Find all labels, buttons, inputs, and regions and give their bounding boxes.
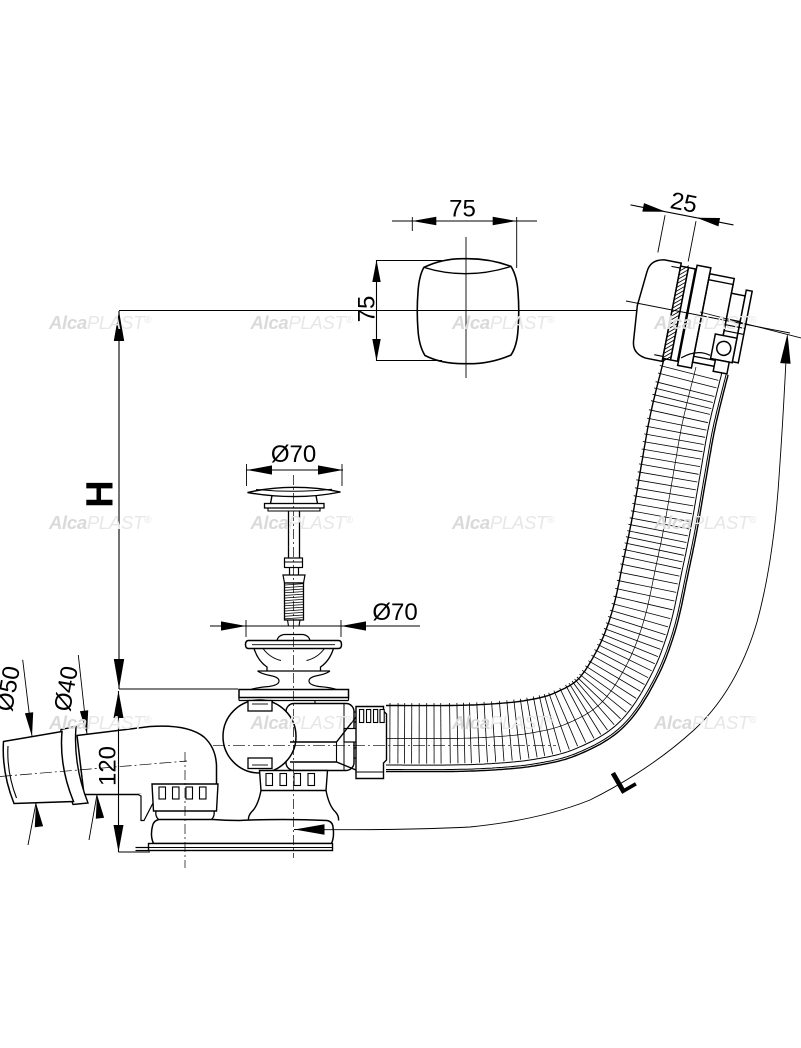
- svg-text:AlcaPLAST®: AlcaPLAST®: [48, 712, 152, 733]
- svg-text:AlcaPLAST®: AlcaPLAST®: [48, 512, 152, 533]
- svg-text:25: 25: [668, 187, 699, 219]
- svg-text:AlcaPLAST®: AlcaPLAST®: [451, 512, 555, 533]
- svg-text:75: 75: [449, 196, 476, 223]
- svg-text:AlcaPLAST®: AlcaPLAST®: [653, 312, 757, 333]
- svg-text:AlcaPLAST®: AlcaPLAST®: [250, 712, 354, 733]
- svg-text:120: 120: [95, 746, 122, 786]
- svg-text:AlcaPLAST®: AlcaPLAST®: [451, 712, 555, 733]
- svg-text:AlcaPLAST®: AlcaPLAST®: [451, 312, 555, 333]
- svg-text:Ø70: Ø70: [372, 599, 417, 626]
- svg-text:75: 75: [354, 296, 381, 323]
- svg-text:AlcaPLAST®: AlcaPLAST®: [653, 712, 757, 733]
- svg-text:AlcaPLAST®: AlcaPLAST®: [48, 312, 152, 333]
- svg-text:AlcaPLAST®: AlcaPLAST®: [250, 512, 354, 533]
- svg-text:Ø70: Ø70: [271, 441, 316, 468]
- svg-text:AlcaPLAST®: AlcaPLAST®: [653, 512, 757, 533]
- svg-text:AlcaPLAST®: AlcaPLAST®: [250, 312, 354, 333]
- svg-text:H: H: [80, 480, 122, 507]
